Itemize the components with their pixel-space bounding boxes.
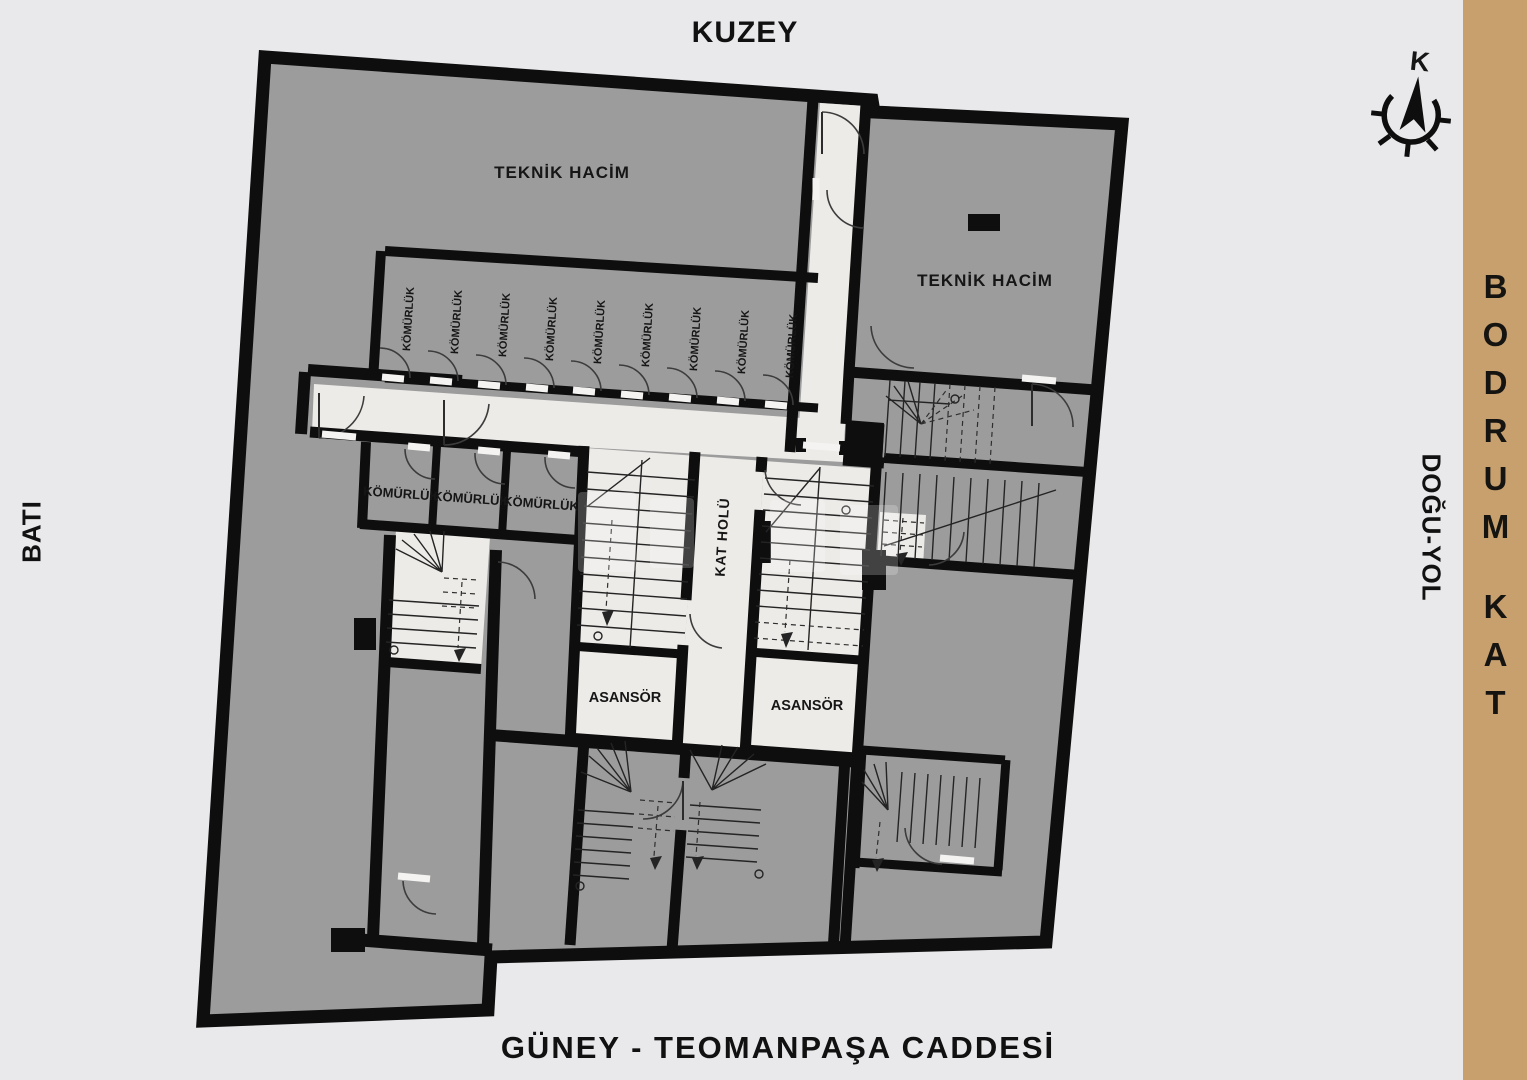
compass-north-letter: K: [1409, 46, 1432, 78]
compass-needle: [1400, 75, 1432, 132]
room-label-teknik-hacim-left: TEKNİK HACİM: [494, 163, 630, 182]
room-label-asansor-right: ASANSÖR: [771, 697, 844, 714]
compass-icon: K: [1367, 42, 1458, 161]
room-label-asansor-left: ASANSÖR: [589, 689, 662, 706]
room-label-teknik-hacim-right: TEKNİK HACİM: [917, 271, 1053, 290]
floor-plan-page: KUZEY GÜNEY - TEOMANPAŞA CADDESİ BATI DO…: [0, 0, 1527, 1080]
floor-plan-drawing: TEKNİK HACİM TEKNİK HACİM KÖMÜRLÜK KÖMÜR…: [0, 0, 1527, 1080]
